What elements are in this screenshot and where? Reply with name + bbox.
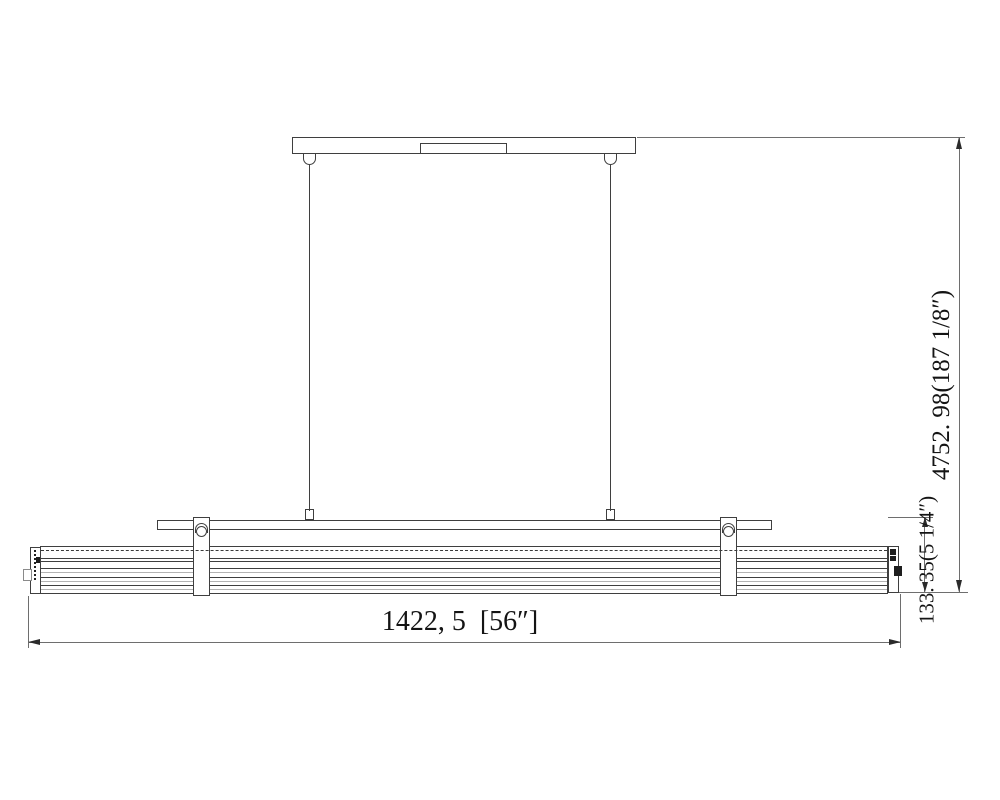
body-line-light <box>41 572 887 573</box>
height-dimension-label: 4752. 98(187 1/8″) <box>928 290 956 480</box>
width-dim-arrow-right <box>889 639 901 645</box>
body-dashed-centerline <box>41 550 887 551</box>
cable-connector-left <box>305 509 314 520</box>
suspension-cable-left <box>309 165 310 511</box>
body-line <box>41 585 887 586</box>
end-cap-left-tab <box>23 569 32 581</box>
end-cap-left-hinge-detail <box>34 550 36 580</box>
strap-knob-left <box>196 526 207 537</box>
extension-line-top <box>637 137 965 138</box>
body-line-light <box>41 581 887 582</box>
end-cap-right-screw-top <box>890 549 896 555</box>
end-cap-right-connector <box>894 566 902 576</box>
height-dim-arrow-top <box>956 137 962 149</box>
cable-gripper-right <box>604 153 617 165</box>
width-dimension-label: 1422, 5 [56″] <box>330 606 590 638</box>
fixture-height-dimension-label: 133. 35(5 1/4″) <box>915 496 940 624</box>
body-line <box>41 568 887 569</box>
body-line <box>41 577 887 578</box>
strap-knob-right <box>723 526 734 537</box>
body-line <box>41 558 887 559</box>
body-line <box>41 561 887 562</box>
canopy-junction-box <box>420 143 507 154</box>
cable-gripper-left <box>303 153 316 165</box>
width-dim-arrow-left <box>28 639 40 645</box>
end-cap-right-screw-bottom <box>890 556 896 561</box>
fixture-body <box>40 546 888 594</box>
end-cap-left-screw <box>36 557 40 563</box>
cable-connector-right <box>606 509 615 520</box>
height-dim-arrow-bottom <box>956 580 962 592</box>
height-dimension-line <box>959 137 960 592</box>
support-rail <box>157 520 772 530</box>
suspension-cable-right <box>610 165 611 511</box>
body-line-light <box>41 589 887 590</box>
width-dimension-line <box>28 642 901 643</box>
technical-drawing-sheet: 1422, 5 [56″] 4752. 98(187 1/8″) 133. 35… <box>0 0 1000 800</box>
